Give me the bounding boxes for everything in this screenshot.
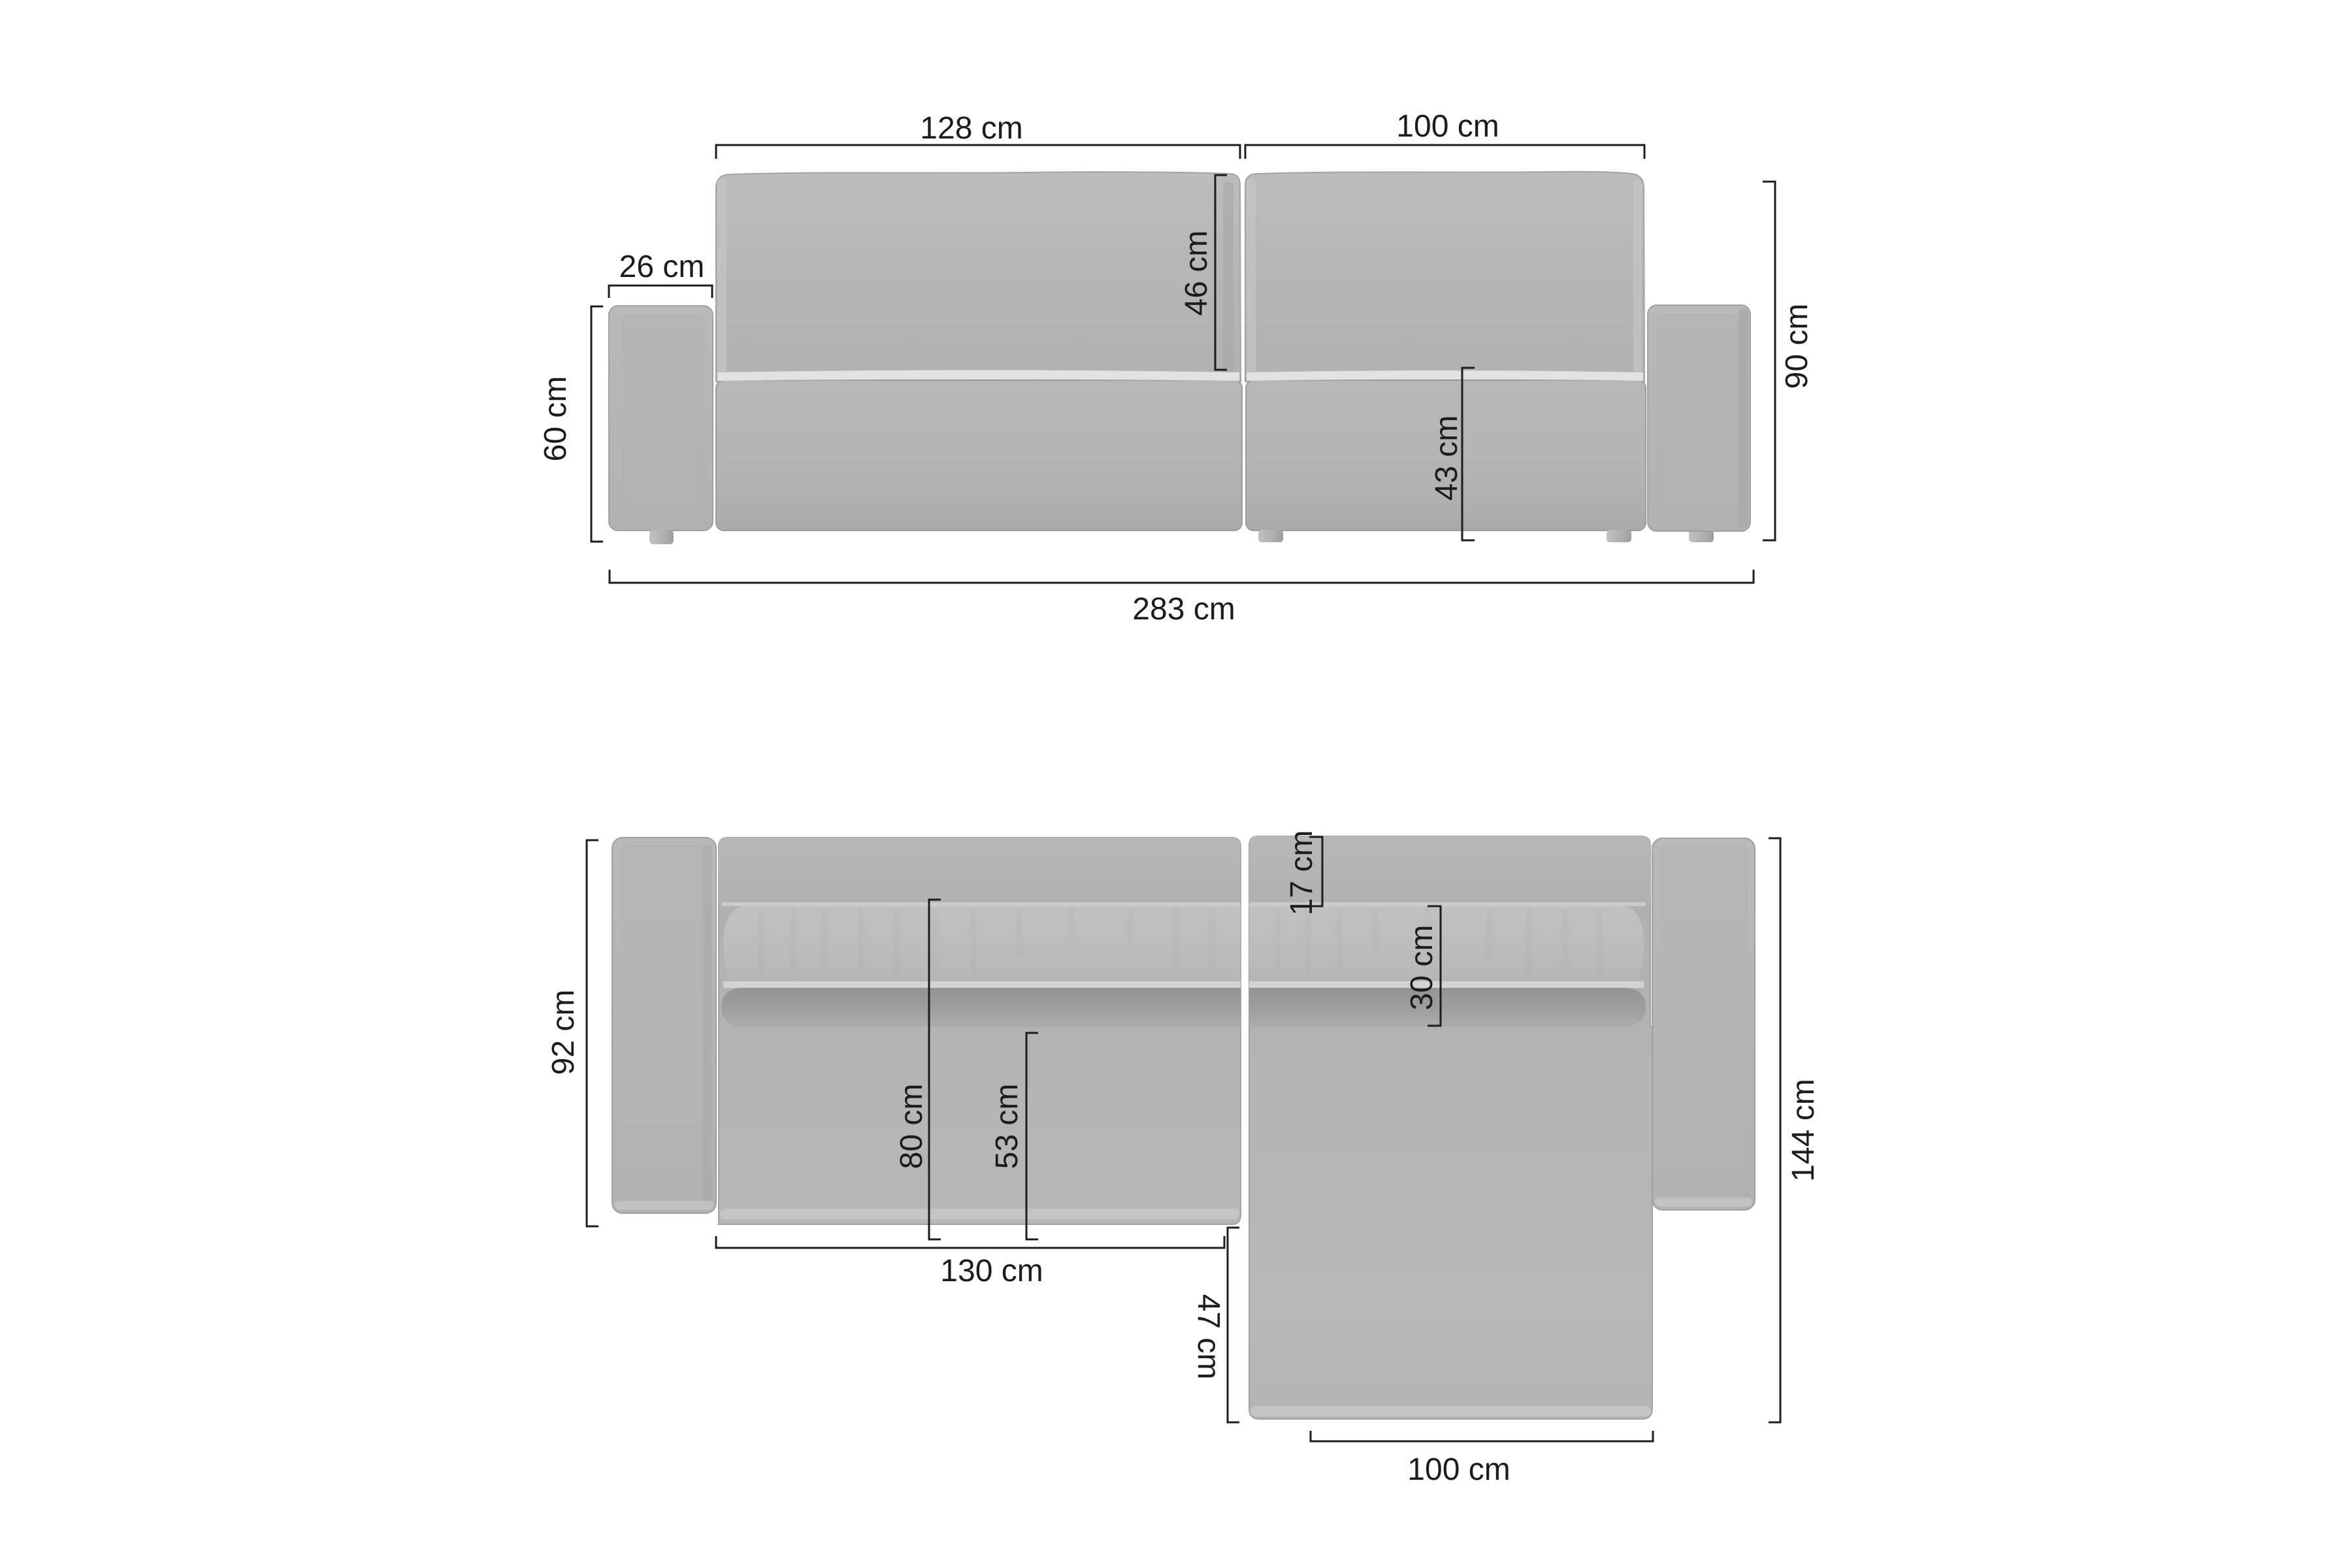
- svg-text:283 cm: 283 cm: [1132, 592, 1235, 627]
- svg-text:130 cm: 130 cm: [940, 1254, 1043, 1288]
- svg-text:30 cm: 30 cm: [1405, 925, 1439, 1011]
- svg-text:90 cm: 90 cm: [1780, 304, 1814, 389]
- svg-text:43 cm: 43 cm: [1429, 416, 1464, 501]
- svg-text:17 cm: 17 cm: [1284, 830, 1319, 916]
- svg-text:144 cm: 144 cm: [1786, 1079, 1821, 1181]
- svg-text:100 cm: 100 cm: [1396, 109, 1499, 144]
- svg-text:47 cm: 47 cm: [1191, 1294, 1226, 1380]
- svg-text:128 cm: 128 cm: [920, 111, 1022, 146]
- svg-text:26 cm: 26 cm: [619, 250, 705, 284]
- svg-text:60 cm: 60 cm: [538, 376, 573, 462]
- svg-text:80 cm: 80 cm: [894, 1084, 929, 1169]
- svg-text:100 cm: 100 cm: [1407, 1452, 1510, 1487]
- svg-text:92 cm: 92 cm: [546, 990, 581, 1075]
- svg-text:53 cm: 53 cm: [990, 1084, 1024, 1169]
- svg-text:46 cm: 46 cm: [1179, 231, 1214, 316]
